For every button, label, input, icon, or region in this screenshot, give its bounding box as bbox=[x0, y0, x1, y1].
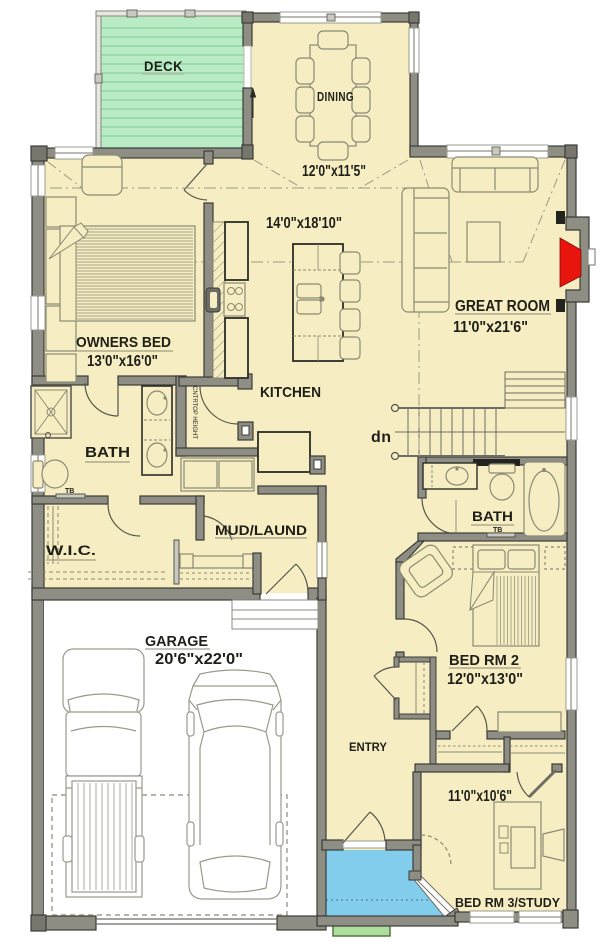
svg-text:MUD/LAUND: MUD/LAUND bbox=[215, 522, 307, 538]
svg-text:BED RM 2: BED RM 2 bbox=[449, 652, 519, 669]
svg-text:BATH: BATH bbox=[85, 444, 130, 461]
svg-text:BATH: BATH bbox=[472, 508, 513, 524]
svg-text:DECK: DECK bbox=[144, 58, 183, 74]
svg-text:DINING: DINING bbox=[317, 89, 354, 104]
svg-text:GARAGE: GARAGE bbox=[145, 633, 208, 650]
svg-text:12'0"x13'0": 12'0"x13'0" bbox=[447, 671, 523, 688]
svg-text:dn: dn bbox=[371, 429, 392, 446]
svg-text:OWNERS BED: OWNERS BED bbox=[76, 334, 171, 351]
svg-text:GREAT ROOM: GREAT ROOM bbox=[455, 298, 550, 315]
svg-text:KITCHEN: KITCHEN bbox=[260, 384, 321, 401]
svg-text:14'0"x18'10": 14'0"x18'10" bbox=[266, 215, 342, 232]
svg-text:ENTRY: ENTRY bbox=[349, 740, 387, 754]
svg-text:12'0"x11'5": 12'0"x11'5" bbox=[302, 163, 366, 180]
svg-text:11'0"x21'6": 11'0"x21'6" bbox=[453, 319, 528, 336]
svg-text:CNTRTOP HEIGHT: CNTRTOP HEIGHT bbox=[191, 386, 197, 439]
svg-text:W.I.C.: W.I.C. bbox=[46, 542, 96, 558]
svg-text:20'6"x22'0": 20'6"x22'0" bbox=[155, 651, 243, 668]
svg-text:BED RM 3/STUDY: BED RM 3/STUDY bbox=[455, 895, 560, 910]
svg-text:13'0"x16'0": 13'0"x16'0" bbox=[87, 353, 158, 370]
